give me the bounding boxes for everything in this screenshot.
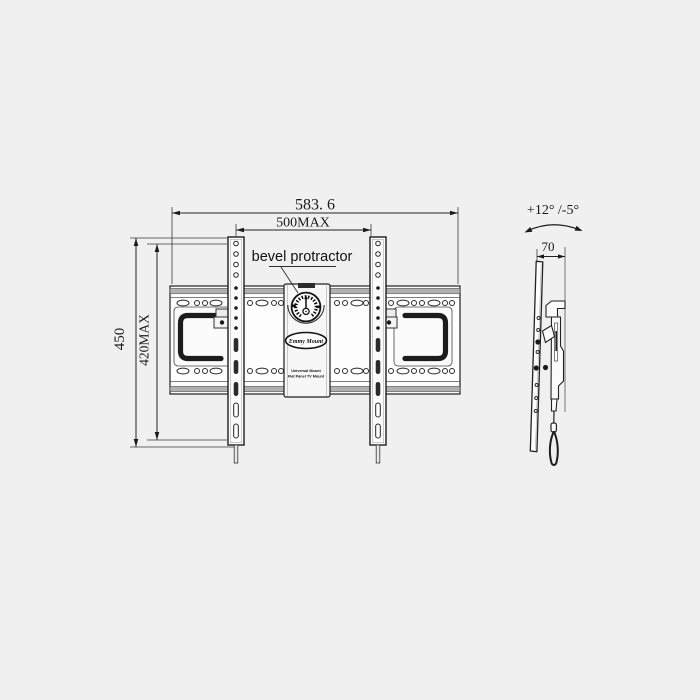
dimension-depth-value: 70 — [542, 239, 555, 254]
dimension-max-hole-height-value: 420MAX — [137, 314, 152, 366]
bevel-protractor-label: bevel protractor — [252, 249, 353, 265]
brand-logo-text: Emmy Mount — [288, 339, 324, 345]
brand-logo: Emmy Mount — [286, 333, 327, 349]
center-label-plate: Emmy Mount Universal Mount Flat Panel TV… — [284, 283, 330, 397]
tilt-range-value: +12° /-5° — [527, 203, 579, 218]
technical-drawing-canvas: Emmy Mount Universal Mount Flat Panel TV… — [0, 0, 700, 700]
left-rail-pull-strip — [234, 445, 238, 463]
right-rail-pull-strip — [376, 445, 380, 463]
dimension-max-hole-width-value: 500MAX — [276, 216, 330, 231]
pull-cord-loop — [550, 432, 558, 465]
dimension-overall-height-value: 450 — [112, 328, 128, 351]
right-vesa-rail — [370, 237, 386, 463]
tv-mount-diagram: Emmy Mount Universal Mount Flat Panel TV… — [0, 0, 700, 700]
label-plate-top-tab — [298, 283, 315, 288]
left-vesa-rail — [228, 237, 244, 463]
right-spring-arm — [394, 307, 452, 366]
dimension-overall-width-value: 583. 6 — [295, 197, 335, 214]
logo-tagline-line1: Universal Mount — [291, 369, 321, 373]
logo-tagline-line2: Flat Panel TV Mount — [288, 375, 325, 379]
pull-cord-bead — [551, 423, 556, 432]
